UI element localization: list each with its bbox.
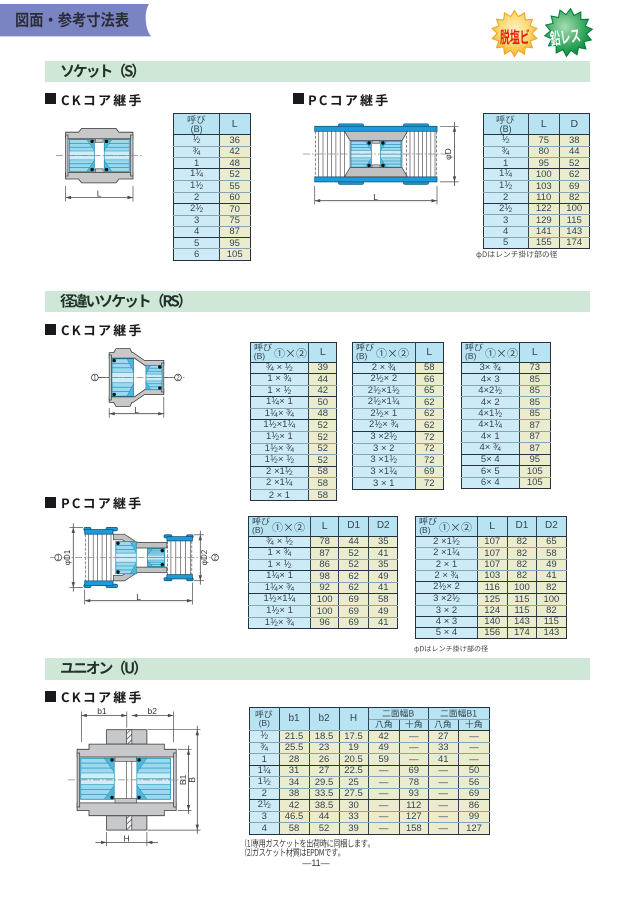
svg-text:B: B [187, 777, 197, 783]
svg-text:L: L [97, 189, 102, 199]
svg-text:L: L [136, 592, 141, 602]
svg-text:φD: φD [443, 148, 453, 160]
svg-text:b1: b1 [97, 706, 107, 716]
svg-text:φD1: φD1 [63, 549, 72, 565]
svg-text:H: H [124, 834, 130, 844]
svg-text:b2: b2 [148, 706, 158, 716]
svg-text:L: L [134, 405, 139, 415]
svg-text:φD2: φD2 [200, 549, 209, 565]
svg-text:L: L [373, 192, 378, 202]
